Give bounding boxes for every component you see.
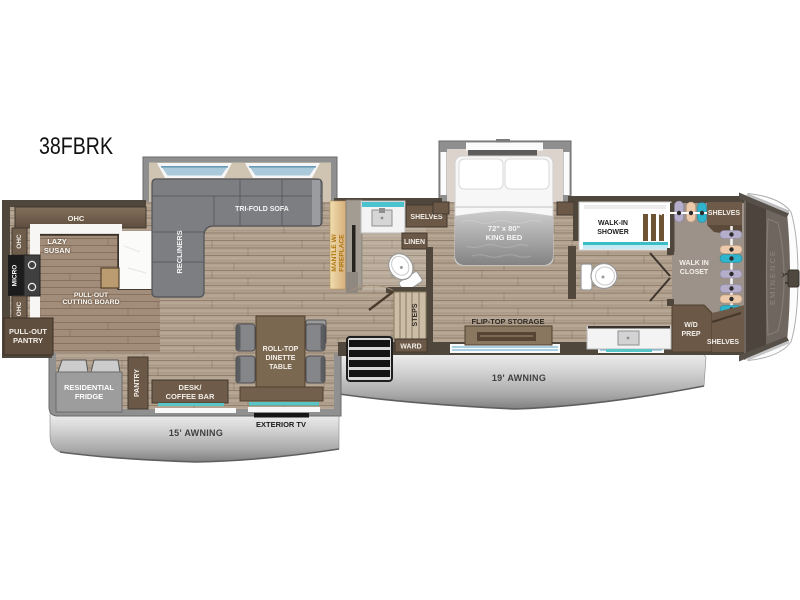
svg-text:LINEN: LINEN	[404, 239, 425, 246]
svg-text:15' AWNING: 15' AWNING	[169, 428, 223, 438]
svg-text:SHELVES: SHELVES	[707, 339, 739, 346]
svg-text:FLIP-TOP STORAGE: FLIP-TOP STORAGE	[472, 317, 545, 326]
svg-text:SHOWER: SHOWER	[597, 229, 629, 236]
svg-text:FIREPLACE: FIREPLACE	[339, 234, 346, 272]
svg-text:EXTERIOR TV: EXTERIOR TV	[256, 420, 306, 429]
svg-text:CUTTING BOARD: CUTTING BOARD	[62, 299, 119, 306]
svg-text:DESK/: DESK/	[179, 383, 203, 392]
svg-text:OHC: OHC	[68, 214, 85, 223]
svg-text:PANTRY: PANTRY	[13, 336, 43, 345]
svg-text:W/D: W/D	[684, 322, 698, 329]
svg-text:WALK IN: WALK IN	[679, 260, 709, 267]
svg-text:LAZY: LAZY	[47, 237, 67, 246]
svg-text:TRI-FOLD SOFA: TRI-FOLD SOFA	[235, 206, 289, 213]
svg-text:WARD: WARD	[400, 344, 421, 351]
svg-text:PULL-OUT: PULL-OUT	[9, 327, 47, 336]
svg-text:PANTRY: PANTRY	[134, 369, 141, 397]
svg-text:COFFEE BAR: COFFEE BAR	[166, 392, 215, 401]
svg-text:SHELVES: SHELVES	[410, 214, 442, 221]
svg-text:CLOSET: CLOSET	[680, 269, 709, 276]
svg-text:WALK-IN: WALK-IN	[598, 220, 628, 227]
svg-text:PREP: PREP	[681, 331, 700, 338]
svg-text:OHC: OHC	[16, 301, 23, 316]
svg-text:19' AWNING: 19' AWNING	[492, 373, 546, 383]
svg-text:38FBRK: 38FBRK	[39, 133, 113, 160]
svg-text:SUSAN: SUSAN	[44, 246, 70, 255]
svg-text:EMINENCE: EMINENCE	[768, 249, 777, 305]
svg-text:FRIDGE: FRIDGE	[75, 392, 103, 401]
svg-text:RECLINERS: RECLINERS	[175, 230, 184, 273]
svg-text:MANTLE W/: MANTLE W/	[331, 234, 338, 272]
svg-text:SHELVES: SHELVES	[708, 210, 740, 217]
svg-text:MICRO: MICRO	[12, 265, 19, 287]
svg-text:KING BED: KING BED	[486, 233, 523, 242]
svg-text:STEPS: STEPS	[412, 303, 419, 326]
svg-text:TABLE: TABLE	[269, 364, 292, 371]
svg-text:OHC: OHC	[16, 234, 23, 249]
svg-text:72" x 80": 72" x 80"	[488, 224, 521, 233]
svg-text:DINETTE: DINETTE	[266, 355, 296, 362]
svg-text:PULL-OUT: PULL-OUT	[74, 292, 109, 299]
svg-text:ROLL-TOP: ROLL-TOP	[263, 346, 299, 353]
svg-text:RESIDENTIAL: RESIDENTIAL	[64, 383, 114, 392]
